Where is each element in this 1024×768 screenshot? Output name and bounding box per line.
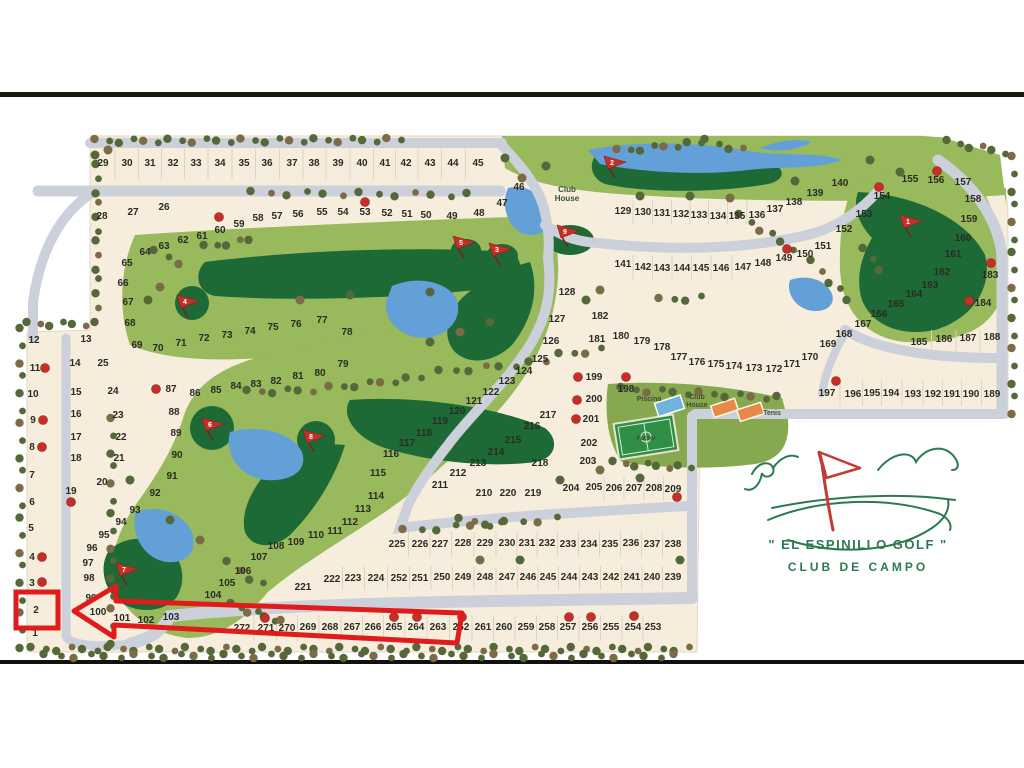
tree-icon (206, 647, 214, 655)
lot-number-217: 217 (540, 410, 557, 421)
logo-subtitle: CLUB DE CAMPO (788, 560, 928, 574)
lot-number-118: 118 (416, 428, 433, 439)
lot-number-164: 164 (906, 289, 923, 300)
tree-icon (390, 192, 398, 200)
lot-number-214: 214 (488, 447, 505, 458)
tree-icon (1007, 314, 1015, 322)
lot-number-178: 178 (654, 342, 671, 353)
lot-number-96: 96 (86, 543, 98, 554)
tree-icon (426, 288, 435, 297)
tree-icon (398, 137, 405, 144)
lot-number-56: 56 (292, 209, 304, 220)
tree-icon (478, 655, 485, 662)
lot-number-142: 142 (635, 262, 652, 273)
tree-icon (246, 187, 254, 195)
tree-icon (700, 135, 708, 143)
tree-icon (279, 652, 287, 660)
tree-icon (1011, 171, 1018, 178)
tree-icon (261, 138, 269, 146)
tree-icon (95, 305, 102, 312)
tree-icon (668, 388, 676, 396)
lot-number-17: 17 (70, 432, 82, 443)
red-marker-dot (574, 373, 583, 382)
lot-number-195: 195 (864, 388, 881, 399)
tree-icon (178, 651, 185, 658)
tree-icon (277, 135, 284, 142)
tree-icon (942, 136, 950, 144)
red-marker-dot (622, 373, 631, 382)
lot-number-145: 145 (693, 263, 710, 274)
tree-icon (126, 476, 135, 485)
lot-number-16: 16 (70, 409, 82, 420)
lot-number-120: 120 (449, 406, 466, 417)
piscina-label: Piscina (637, 396, 662, 403)
lot-number-199: 199 (586, 372, 603, 383)
tree-icon (571, 350, 578, 357)
tree-icon (309, 134, 317, 142)
lot-number-33: 33 (190, 158, 202, 169)
lot-number-141: 141 (615, 259, 632, 270)
lot-number-268: 268 (322, 622, 339, 633)
tree-icon (328, 653, 335, 660)
tree-icon (515, 647, 523, 655)
tree-icon (711, 391, 718, 398)
lot-number-156: 156 (928, 175, 945, 186)
lot-number-13: 13 (80, 334, 92, 345)
tree-icon (118, 655, 125, 662)
lot-number-168: 168 (836, 329, 853, 340)
tree-icon (155, 645, 163, 653)
tree-icon (666, 465, 673, 472)
lot-number-175: 175 (708, 359, 725, 370)
lot-number-241: 241 (624, 572, 641, 583)
tree-icon (636, 192, 645, 201)
lot-number-39: 39 (332, 158, 344, 169)
red-marker-dot (215, 213, 224, 222)
lot-number-224: 224 (368, 573, 385, 584)
tree-icon (1011, 363, 1018, 370)
svg-text:5: 5 (459, 240, 463, 247)
tree-icon (19, 408, 26, 415)
golf-course-site-map: 1234567891011121314151617181920212223242… (0, 0, 1024, 768)
lot-number-148: 148 (755, 258, 772, 269)
lot-number-143: 143 (654, 263, 671, 274)
tree-icon (568, 655, 575, 662)
lot-number-31: 31 (144, 158, 156, 169)
tree-icon (139, 137, 147, 145)
lot-number-23: 23 (112, 410, 124, 421)
tree-icon (188, 138, 196, 146)
lot-number-101: 101 (114, 613, 131, 624)
red-marker-dot (587, 613, 596, 622)
lot-number-44: 44 (447, 158, 459, 169)
top-scan-border (0, 92, 1024, 97)
lot-number-113: 113 (355, 504, 372, 515)
lot-number-2: 2 (33, 605, 39, 616)
lot-number-4: 4 (29, 552, 35, 563)
lot-number-132: 132 (673, 209, 690, 220)
tree-icon (196, 536, 205, 545)
tree-icon (99, 652, 107, 660)
tree-icon (37, 321, 44, 328)
lot-number-48: 48 (473, 208, 485, 219)
tree-icon (324, 382, 332, 390)
lot-number-115: 115 (370, 468, 387, 479)
lot-number-229: 229 (477, 538, 494, 549)
tree-icon (866, 156, 875, 165)
tree-icon (1011, 201, 1018, 208)
tree-icon (519, 654, 527, 662)
lot-number-89: 89 (170, 428, 182, 439)
tree-icon (159, 654, 167, 662)
lot-number-216: 216 (524, 421, 541, 432)
tree-icon (1011, 333, 1018, 340)
lot-number-234: 234 (581, 539, 598, 550)
lot-number-62: 62 (177, 235, 189, 246)
lot-number-61: 61 (196, 231, 208, 242)
tree-icon (15, 359, 23, 367)
lot-number-219: 219 (525, 488, 542, 499)
tree-icon (304, 188, 311, 195)
lot-number-238: 238 (665, 539, 682, 550)
svg-text:9: 9 (563, 229, 567, 236)
lot-number-252: 252 (391, 573, 408, 584)
tree-icon (339, 654, 347, 662)
tree-icon (260, 580, 267, 587)
lot-number-35: 35 (238, 158, 250, 169)
tree-icon (448, 651, 455, 658)
lot-number-166: 166 (871, 309, 888, 320)
tree-icon (91, 236, 99, 244)
lot-number-133: 133 (691, 210, 708, 221)
tree-icon (1007, 188, 1015, 196)
tenis-label: Tenis (763, 410, 781, 417)
lot-number-73: 73 (221, 330, 233, 341)
tree-icon (358, 136, 366, 144)
red-marker-dot (67, 498, 76, 507)
lot-number-256: 256 (582, 622, 599, 633)
tree-icon (106, 574, 114, 582)
tree-icon (438, 647, 446, 655)
tree-icon (199, 241, 207, 249)
bottom-scan-border (0, 660, 1024, 664)
lot-number-266: 266 (365, 622, 382, 633)
lot-number-155: 155 (902, 174, 919, 185)
lot-number-8: 8 (29, 442, 35, 453)
lot-number-184: 184 (975, 298, 992, 309)
tree-icon (179, 137, 186, 144)
lot-number-52: 52 (381, 208, 393, 219)
lot-number-59: 59 (233, 219, 245, 230)
lot-number-263: 263 (430, 622, 447, 633)
tree-icon (58, 653, 65, 660)
tree-icon (249, 648, 256, 655)
tree-icon (174, 260, 182, 268)
tree-icon (282, 191, 290, 199)
svg-text:8: 8 (309, 434, 313, 441)
lot-number-198: 198 (618, 384, 635, 395)
lot-number-244: 244 (561, 572, 578, 583)
lot-number-243: 243 (582, 572, 599, 583)
lot-number-177: 177 (671, 352, 688, 363)
logo-flag (819, 452, 860, 530)
lot-number-206: 206 (606, 483, 623, 494)
lot-number-37: 37 (286, 158, 298, 169)
lot-number-186: 186 (936, 334, 953, 345)
lot-number-169: 169 (820, 339, 837, 350)
club-house-amenity-label: House (686, 402, 708, 409)
tree-icon (219, 650, 227, 658)
lot-number-147: 147 (735, 262, 752, 273)
lot-number-211: 211 (432, 480, 449, 491)
tree-icon (688, 465, 695, 472)
tree-icon (146, 644, 153, 651)
lot-number-227: 227 (432, 539, 449, 550)
lot-number-165: 165 (888, 299, 905, 310)
lot-number-42: 42 (400, 158, 412, 169)
lot-number-10: 10 (27, 389, 39, 400)
tree-icon (483, 362, 490, 369)
lot-number-123: 123 (499, 376, 516, 387)
tree-icon (567, 643, 575, 651)
tree-icon (870, 256, 877, 263)
tree-icon (294, 386, 302, 394)
red-marker-dot (390, 613, 399, 622)
lot-number-162: 162 (934, 267, 951, 278)
lot-number-153: 153 (856, 209, 873, 220)
tree-icon (300, 644, 307, 651)
lot-number-208: 208 (646, 483, 663, 494)
lot-number-197: 197 (819, 388, 836, 399)
tree-icon (350, 383, 358, 391)
lot-number-130: 130 (635, 207, 652, 218)
tree-icon (367, 378, 374, 385)
lot-number-110: 110 (308, 530, 325, 541)
lot-number-111: 111 (327, 526, 343, 537)
lot-number-264: 264 (408, 622, 425, 633)
lot-number-100: 100 (90, 607, 107, 618)
tree-icon (19, 532, 26, 539)
lot-number-181: 181 (589, 334, 606, 345)
tree-icon (1007, 380, 1015, 388)
lot-number-231: 231 (519, 538, 536, 549)
tree-icon (106, 509, 114, 517)
tree-icon (965, 144, 973, 152)
red-marker-dot (987, 259, 996, 268)
tree-icon (542, 162, 551, 171)
tree-icon (623, 460, 630, 467)
tree-icon (95, 199, 102, 206)
lot-number-24: 24 (107, 386, 119, 397)
tree-icon (1011, 237, 1018, 244)
tree-icon (274, 646, 281, 653)
tree-icon (19, 562, 26, 569)
club-house-top-label: House (555, 194, 580, 203)
lot-number-269: 269 (300, 622, 317, 633)
tree-icon (1011, 267, 1018, 274)
tree-icon (22, 318, 30, 326)
tree-icon (243, 608, 251, 616)
tree-icon (369, 652, 377, 660)
lot-number-7: 7 (29, 470, 35, 481)
lot-number-218: 218 (532, 458, 549, 469)
svg-text:7: 7 (122, 567, 126, 574)
lot-number-267: 267 (344, 622, 361, 633)
tree-icon (824, 279, 832, 287)
tree-icon (26, 643, 34, 651)
tree-icon (181, 643, 189, 651)
tree-icon (374, 139, 381, 146)
tree-icon (459, 652, 467, 660)
tree-icon (676, 556, 685, 565)
tree-icon (737, 390, 744, 397)
lot-number-163: 163 (922, 280, 939, 291)
red-marker-dot (573, 396, 582, 405)
tree-icon (516, 556, 525, 565)
lot-number-138: 138 (786, 197, 803, 208)
svg-text:6: 6 (208, 422, 212, 429)
tree-icon (494, 362, 502, 370)
tree-icon (489, 650, 497, 658)
futbol-label: Futbol (637, 436, 656, 442)
lot-number-104: 104 (205, 590, 222, 601)
tree-icon (83, 323, 90, 330)
tree-icon (412, 643, 420, 651)
tree-icon (60, 319, 67, 326)
tree-icon (419, 526, 426, 533)
lot-number-106: 106 (235, 566, 252, 577)
tree-icon (19, 467, 26, 474)
tree-icon (352, 646, 359, 653)
tree-icon (673, 461, 681, 469)
tree-icon (683, 138, 691, 146)
tree-icon (377, 644, 384, 651)
tree-icon (681, 296, 689, 304)
tree-icon (208, 655, 215, 662)
tree-icon (480, 648, 487, 655)
lot-number-116: 116 (383, 449, 400, 460)
tree-icon (228, 139, 235, 146)
tree-icon (399, 650, 407, 658)
tree-icon (669, 650, 677, 658)
tree-icon (874, 266, 882, 274)
lot-number-9: 9 (30, 415, 36, 426)
tree-icon (554, 349, 562, 357)
tree-icon (1007, 410, 1015, 418)
logo: " EL ESPINILLO GOLF " CLUB DE CAMPO (745, 449, 958, 574)
tree-icon (212, 136, 220, 144)
lot-number-11: 11 (30, 363, 41, 374)
tree-icon (609, 644, 616, 651)
tree-icon (296, 296, 305, 305)
tree-icon (392, 379, 399, 386)
lot-number-161: 161 (945, 249, 962, 260)
red-marker-dot (41, 364, 50, 373)
lot-number-191: 191 (944, 389, 961, 400)
tree-icon (819, 268, 826, 275)
lot-number-114: 114 (368, 491, 385, 502)
lot-number-251: 251 (412, 573, 429, 584)
lot-number-226: 226 (412, 539, 429, 550)
tree-icon (258, 643, 266, 651)
lot-number-98: 98 (83, 573, 95, 584)
lot-number-245: 245 (540, 572, 557, 583)
tree-icon (686, 644, 693, 651)
lot-number-92: 92 (149, 488, 161, 499)
lot-number-237: 237 (644, 539, 661, 550)
red-marker-dot (38, 553, 47, 562)
tree-icon (772, 392, 780, 400)
lot-number-187: 187 (960, 333, 977, 344)
lot-number-122: 122 (483, 387, 500, 398)
tree-icon (453, 367, 460, 374)
lot-number-54: 54 (337, 207, 349, 218)
tree-icon (197, 646, 204, 653)
lot-number-150: 150 (797, 249, 814, 260)
tree-icon (980, 143, 987, 150)
lot-number-222: 222 (324, 574, 341, 585)
tree-icon (244, 236, 252, 244)
tree-icon (418, 375, 425, 382)
lot-number-75: 75 (267, 322, 279, 333)
tree-icon (481, 520, 489, 528)
lot-number-71: 71 (175, 338, 187, 349)
tree-icon (346, 291, 355, 300)
lot-number-239: 239 (665, 572, 682, 583)
lot-number-90: 90 (171, 450, 183, 461)
lot-number-189: 189 (984, 389, 1001, 400)
lot-number-41: 41 (379, 158, 391, 169)
red-marker-dot (630, 612, 639, 621)
red-marker-dot (38, 443, 47, 452)
lot-number-188: 188 (984, 332, 1001, 343)
lot-number-45: 45 (472, 158, 484, 169)
screenshot-root: 1234567891011121314151617181920212223242… (0, 0, 1024, 768)
lot-number-80: 80 (314, 368, 326, 379)
tree-icon (268, 651, 275, 658)
tree-icon (659, 142, 667, 150)
lot-number-207: 207 (626, 483, 643, 494)
lot-number-135: 135 (729, 211, 746, 222)
tree-icon (581, 349, 589, 357)
tree-icon (19, 372, 26, 379)
lot-number-129: 129 (615, 206, 632, 217)
svg-text:3: 3 (495, 247, 499, 254)
tree-icon (579, 650, 587, 658)
tree-icon (557, 648, 564, 655)
tree-icon (675, 144, 682, 151)
tree-icon (237, 236, 244, 243)
lot-number-196: 196 (845, 389, 862, 400)
lot-number-194: 194 (883, 388, 900, 399)
lot-number-182: 182 (592, 311, 609, 322)
lot-number-144: 144 (674, 263, 691, 274)
lot-number-97: 97 (82, 558, 94, 569)
lot-number-203: 203 (580, 456, 597, 467)
tree-icon (285, 385, 292, 392)
lot-number-257: 257 (560, 622, 577, 633)
lot-number-200: 200 (586, 394, 603, 405)
lot-number-154: 154 (874, 191, 891, 202)
lot-number-215: 215 (505, 435, 522, 446)
lot-number-240: 240 (644, 572, 661, 583)
tree-icon (698, 293, 705, 300)
lot-number-103: 103 (163, 612, 180, 623)
lot-number-127: 127 (549, 314, 566, 325)
tree-icon (628, 146, 635, 153)
lot-number-47: 47 (496, 198, 508, 209)
lot-number-77: 77 (316, 315, 328, 326)
